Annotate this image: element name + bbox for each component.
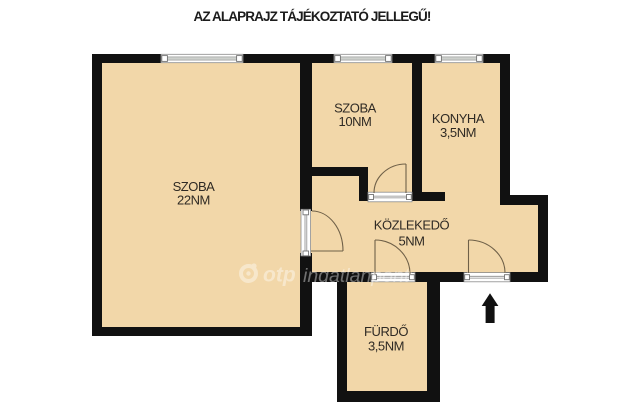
svg-text:5NM: 5NM [398, 234, 424, 249]
svg-text:ingatlanpont: ingatlanpont [303, 265, 411, 287]
svg-text:22NM: 22NM [177, 193, 210, 208]
svg-text:KONYHA: KONYHA [432, 111, 485, 126]
svg-text:FÜRDŐ: FÜRDŐ [364, 324, 408, 339]
svg-text:3,5NM: 3,5NM [440, 125, 476, 140]
svg-text:AZ ALAPRAJZ TÁJÉKOZTATÓ JELLEG: AZ ALAPRAJZ TÁJÉKOZTATÓ JELLEGŰ! [193, 9, 430, 24]
svg-text:otp: otp [263, 264, 296, 287]
svg-text:10NM: 10NM [339, 114, 372, 129]
svg-text:3,5NM: 3,5NM [368, 339, 404, 354]
svg-text:KÖZLEKEDŐ: KÖZLEKEDŐ [374, 218, 450, 233]
